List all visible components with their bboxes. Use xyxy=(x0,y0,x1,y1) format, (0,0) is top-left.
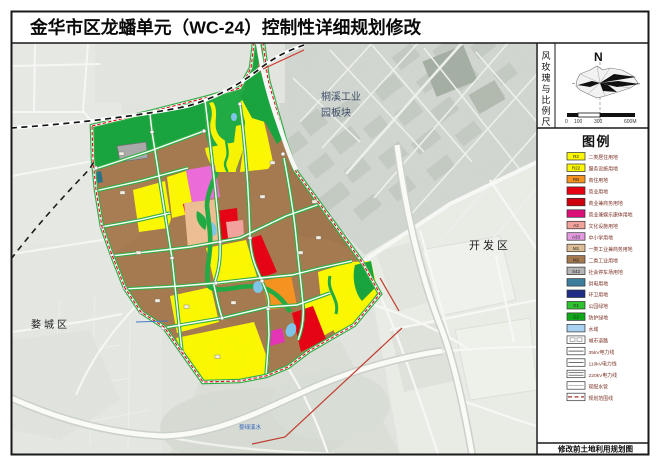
svg-text:修改前土地利用规划图: 修改前土地利用规划图 xyxy=(557,444,633,454)
svg-text:金华市区龙蟠单元（WC-24）控制性详细规划修改: 金华市区龙蟠单元（WC-24）控制性详细规划修改 xyxy=(29,17,421,38)
svg-text:比: 比 xyxy=(542,94,551,105)
svg-text:RB: RB xyxy=(573,177,579,182)
svg-text:例: 例 xyxy=(542,105,551,116)
svg-text:商业用地: 商业用地 xyxy=(589,189,609,196)
svg-text:风: 风 xyxy=(542,51,551,61)
svg-text:商业兼娱乐康体用地: 商业兼娱乐康体用地 xyxy=(589,212,633,219)
svg-text:玫: 玫 xyxy=(542,61,551,72)
svg-text:M1: M1 xyxy=(573,246,580,251)
svg-text:0: 0 xyxy=(565,119,568,125)
svg-text:中小学用地: 中小学用地 xyxy=(589,234,614,241)
svg-text:图例: 图例 xyxy=(582,134,611,149)
svg-text:300: 300 xyxy=(594,119,603,125)
svg-text:N: N xyxy=(594,50,603,64)
svg-text:35kV电力线: 35kV电力线 xyxy=(589,349,615,356)
svg-text:文化设施用地: 文化设施用地 xyxy=(589,223,618,230)
svg-text:A33: A33 xyxy=(572,234,581,239)
svg-text:100: 100 xyxy=(574,119,583,125)
svg-text:R2: R2 xyxy=(573,154,579,159)
svg-text:社会停车场用地: 社会停车场用地 xyxy=(589,269,623,276)
svg-text:服务设施用地: 服务设施用地 xyxy=(589,166,618,173)
svg-text:瑰: 瑰 xyxy=(542,72,551,83)
svg-text:供电用地: 供电用地 xyxy=(589,280,609,287)
svg-text:水域: 水域 xyxy=(589,326,599,333)
svg-text:A2: A2 xyxy=(573,223,579,228)
svg-text:R22: R22 xyxy=(572,166,581,171)
svg-text:600M: 600M xyxy=(624,119,637,125)
svg-text:M2: M2 xyxy=(573,257,580,262)
svg-text:防护绿地: 防护绿地 xyxy=(589,315,609,322)
svg-text:S42: S42 xyxy=(572,269,581,274)
svg-text:G1: G1 xyxy=(573,303,580,308)
svg-text:商业兼商务用地: 商业兼商务用地 xyxy=(589,200,623,207)
svg-text:110kV电力线: 110kV电力线 xyxy=(589,361,617,368)
svg-text:二类工业用地: 二类工业用地 xyxy=(589,257,618,264)
svg-text:二类居住用地: 二类居住用地 xyxy=(589,154,618,161)
svg-text:一类工业兼商务用地: 一类工业兼商务用地 xyxy=(589,246,633,253)
svg-text:公园绿地: 公园绿地 xyxy=(589,303,609,310)
svg-text:现配水管: 现配水管 xyxy=(589,383,609,390)
svg-text:与: 与 xyxy=(542,84,551,94)
svg-text:城市道路: 城市道路 xyxy=(589,338,609,345)
svg-text:规划范围线: 规划范围线 xyxy=(589,395,614,402)
svg-text:商住用地: 商住用地 xyxy=(589,177,609,184)
svg-text:G2: G2 xyxy=(573,315,580,320)
svg-text:220kV电力线: 220kV电力线 xyxy=(589,372,618,379)
svg-text:环卫用地: 环卫用地 xyxy=(589,292,609,299)
svg-text:尺: 尺 xyxy=(542,117,551,127)
